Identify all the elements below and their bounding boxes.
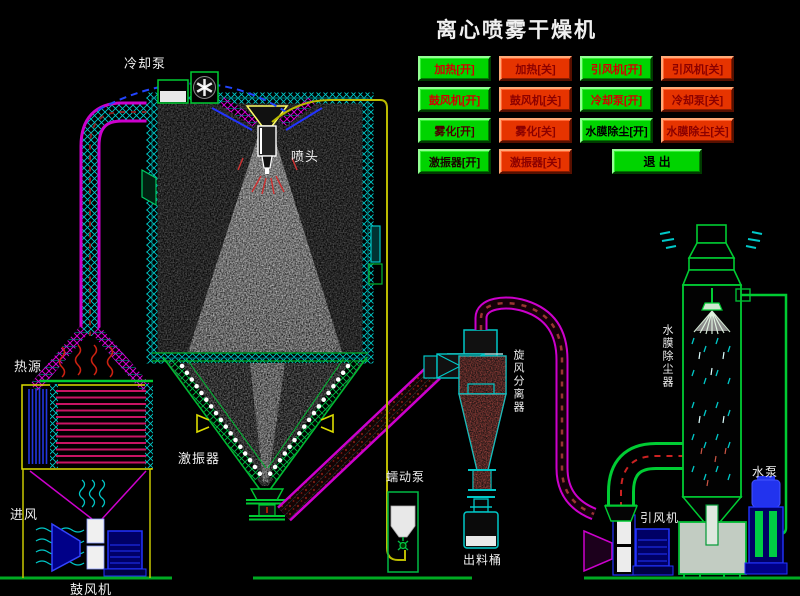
btn-vibrator-on[interactable]: 激振器[开] [418,149,491,174]
discharge-barrel [464,497,498,548]
btn-cooling-pump-on[interactable]: 冷却泵[开] [580,87,653,112]
btn-induced-fan-off[interactable]: 引风机[关] [661,56,734,81]
btn-blower-off[interactable]: 鼓风机[关] [499,87,572,112]
label-spray-head: 喷头 [291,146,319,165]
heater-assembly [22,381,153,469]
heater-inlet-funnel [34,330,146,388]
label-blower: 鼓风机 [70,579,112,596]
btn-induced-fan-on[interactable]: 引风机[开] [580,56,653,81]
water-pump-assembly [745,476,787,574]
btn-blower-on[interactable]: 鼓风机[开] [418,87,491,112]
btn-vibrator-off[interactable]: 激振器[关] [499,149,572,174]
btn-atomizer-off[interactable]: 雾化[关] [499,118,572,143]
hmi-screen: 离心喷雾干燥机 加热[开]加热[关]引风机[开]引风机[关]鼓风机[开]鼓风机[… [0,0,800,596]
label-water-pump: 水泵 [752,463,778,480]
label-cooling-pump: 冷却泵 [124,53,166,72]
label-heat-source: 热源 [14,356,42,375]
label-induced-draft-fan: 引风机 [640,509,679,526]
btn-heating-on[interactable]: 加热[开] [418,56,491,81]
control-panel: 加热[开]加热[关]引风机[开]引风机[关]鼓风机[开]鼓风机[关]冷却泵[开]… [418,56,734,174]
btn-heating-off[interactable]: 加热[关] [499,56,572,81]
blower-assembly [23,469,150,578]
label-vibrator: 激振器 [178,448,220,467]
label-peristaltic-pump: 蠕动泵 [386,468,425,485]
label-discharge-barrel: 出料桶 [463,551,502,568]
btn-atomizer-on[interactable]: 雾化[开] [418,118,491,143]
cyclone-separator [424,330,506,490]
label-air-inlet: 进风 [10,504,38,523]
label-water-film-dust-collector: 水膜除尘器 [659,324,675,389]
btn-cooling-pump-off[interactable]: 冷却泵[关] [661,87,734,112]
btn-exit[interactable]: 退 出 [612,149,702,174]
page-title: 离心喷雾干燥机 [436,14,636,44]
label-cyclone-separator: 旋风分离器 [510,349,526,414]
btn-water-film-off[interactable]: 水膜除尘[关] [661,118,734,143]
btn-water-film-on[interactable]: 水膜除尘[开] [580,118,653,143]
discharge-cone [163,357,367,520]
